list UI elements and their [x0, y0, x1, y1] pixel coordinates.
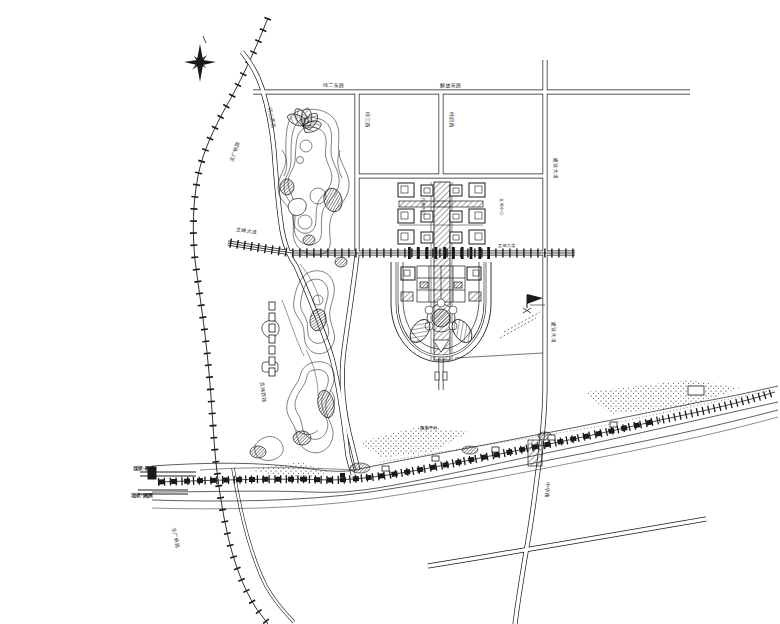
site-plan-canvas: 京广铁路 环山西路 纬二东路 解放东路 经三路 经四路 建设大道 建设大道 行政…: [0, 0, 780, 624]
road-label-boulevard-west: 文峰大道: [236, 226, 258, 235]
flag-marker-icon: [500, 294, 545, 338]
road-label-rail-lower: 京广铁路: [171, 527, 181, 549]
road-label-top-east: 解放东路: [440, 82, 461, 89]
fountain-plaza: [406, 299, 476, 352]
river-belt: [152, 380, 778, 509]
road-label-right: 建设大道: [552, 157, 559, 179]
road-label-right-lower: 建设大道: [550, 321, 557, 343]
road-label-south: 中华路: [544, 482, 551, 498]
road-label-rail-upper: 京广铁路: [228, 140, 240, 162]
bridge-hatch: [528, 440, 542, 466]
park-pavilion-row: [269, 302, 275, 376]
central-axis: [391, 182, 543, 380]
road-label-top-west: 纬二东路: [323, 82, 344, 88]
dock-structure: [688, 386, 704, 395]
cad-site-plan: 京广铁路 环山西路 纬二东路 解放东路 经三路 经四路 建设大道 建设大道 行政…: [0, 0, 780, 624]
road-label-boulevard-east: 景观大道: [498, 243, 516, 248]
axis-crosswalk: [399, 201, 483, 207]
label-station-1: 现状·桥梁: [133, 465, 155, 472]
axis-courtyard: [417, 266, 465, 302]
railway-line: [193, 18, 268, 624]
road-label-park-lower: 滨河西路: [258, 381, 268, 403]
north-arrow-icon: [184, 36, 216, 82]
road-label-v2: 经四路: [448, 112, 455, 128]
label-axis-right: 文化中心: [499, 198, 504, 216]
road-label-v1: 经三路: [365, 112, 371, 128]
label-station-2: 现状·涵洞: [131, 492, 153, 499]
park-fan-planting: [286, 106, 323, 134]
axis-spine: [434, 182, 450, 360]
